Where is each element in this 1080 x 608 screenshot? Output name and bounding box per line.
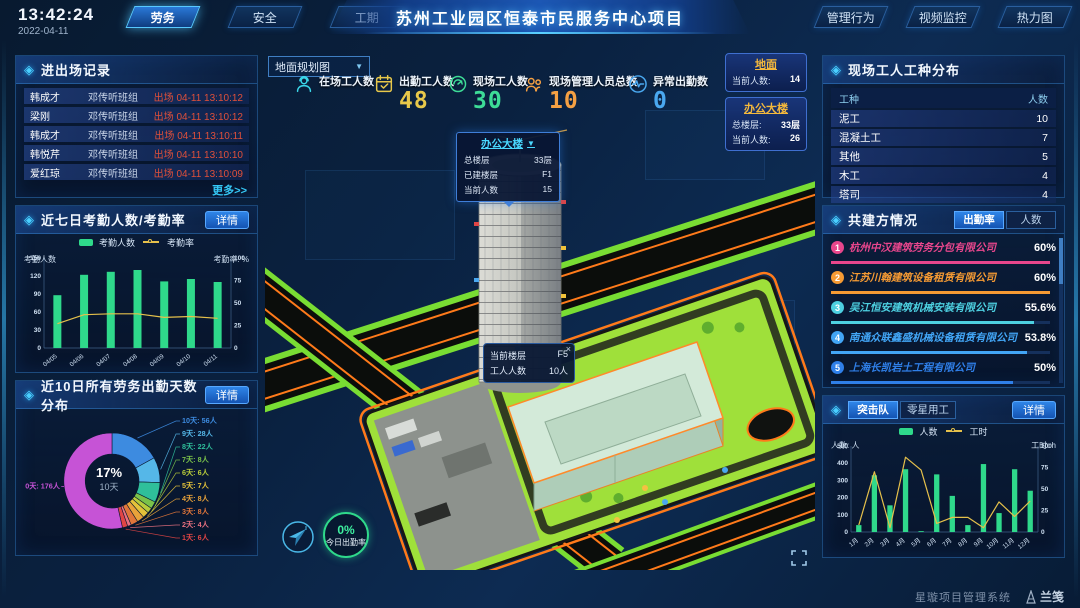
entry-exit-row: 爱红琼邓传听班组出场 04-11 13:10:09 — [24, 164, 249, 180]
card-row-label: 当前人数: — [732, 74, 771, 87]
team-group: 邓传听班组 — [88, 165, 154, 180]
bar-legend-swatch — [79, 239, 93, 246]
worker-type: 塔司 — [839, 187, 1008, 202]
scrollbar[interactable] — [1059, 238, 1063, 383]
close-icon[interactable]: × — [566, 344, 571, 354]
partners-tabs: 出勤率 人数 — [954, 211, 1056, 229]
rank-badge: 4 — [831, 331, 844, 344]
svg-text:3月: 3月 — [879, 536, 892, 548]
svg-text:6月: 6月 — [925, 536, 938, 548]
panel-worker-types: ◈ 现场工人工种分布 工种 人数 泥工10混凝土工7其他5木工4塔司4 — [822, 55, 1065, 198]
exit-event: 出场 04-11 13:10:11 — [154, 127, 243, 142]
company-name: 杭州中汉建筑劳务分包有限公司 — [849, 240, 1029, 255]
company-list-item: 5上海长凯岩土工程有限公司50% — [831, 358, 1056, 385]
panel-title: 近七日考勤人数/考勤率 — [41, 210, 198, 229]
worker-type: 混凝土工 — [839, 130, 1008, 145]
svg-text:04/07: 04/07 — [95, 353, 112, 369]
panel-diamond-icon: ◈ — [24, 62, 34, 78]
stat-value: 30 — [473, 90, 528, 112]
table-row: 其他5 — [831, 148, 1056, 165]
company-list-item: 4南通众联鑫盛机械设备租赁有限公司53.8% — [831, 328, 1056, 357]
people-icon — [523, 72, 545, 101]
company-value: 60% — [1034, 242, 1056, 254]
building-popup-title[interactable]: 办公大楼 ▼ — [464, 136, 552, 151]
stat-text: 现场工人数30 — [473, 72, 528, 112]
panel-title: 共建方情况 — [848, 210, 947, 229]
svg-text:0: 0 — [844, 529, 848, 536]
company-name: 江苏川翰建筑设备租赁有限公司 — [849, 270, 1029, 285]
rank-badge: 2 — [831, 271, 844, 284]
company-list-item: 1杭州中汉建筑劳务分包有限公司60% — [831, 238, 1056, 267]
company-name: 南通众联鑫盛机械设备租赁有限公司 — [849, 330, 1020, 345]
stat-value: 0 — [653, 90, 708, 112]
popup-row-value: 33层 — [534, 154, 552, 166]
svg-text:50: 50 — [1041, 486, 1049, 493]
location-card-row: 当前人数:14 — [732, 74, 800, 87]
tab-label: 管理行为 — [827, 9, 875, 26]
stat-text: 异常出勤数0 — [653, 72, 708, 112]
worker-name: 韩成才 — [30, 89, 88, 104]
worker-name: 梁刚 — [30, 108, 88, 123]
tab-headcount[interactable]: 人数 — [1006, 211, 1056, 229]
edge-glow — [1074, 40, 1078, 598]
progress-track — [831, 351, 1050, 354]
panel-diamond-icon: ◈ — [831, 402, 841, 418]
svg-text:12月: 12月 — [1016, 536, 1031, 551]
popup-row-label: 已建楼层 — [464, 169, 498, 181]
stat-label: 异常出勤数 — [653, 76, 708, 88]
attendance-bar-line-chart: 0306090120150025507510004/0504/0604/0704… — [20, 250, 255, 370]
panel-partners: ◈ 共建方情况 出勤率 人数 1杭州中汉建筑劳务分包有限公司60%2江苏川翰建筑… — [822, 205, 1065, 388]
tab-video-monitor[interactable]: 视频监控 — [906, 6, 981, 28]
card-row-label: 总楼层: — [732, 118, 762, 131]
legend-label: 工时 — [970, 425, 988, 438]
column-header: 工种 — [839, 91, 1008, 106]
tab-assault-team[interactable]: 突击队 — [848, 401, 898, 419]
worker-type: 木工 — [839, 168, 1008, 183]
card-row-value: 14 — [790, 74, 800, 87]
exit-event: 出场 04-11 13:10:09 — [154, 165, 243, 180]
site-stat: 出勤工人数48 — [373, 72, 454, 112]
panel-title: 近10日所有劳务出勤天数分布 — [41, 376, 198, 414]
team-bar-line-chart: 010020030040050002550751001月2月3月4月5月6月7月… — [827, 438, 1062, 554]
exit-event: 出场 04-11 13:10:10 — [154, 146, 243, 161]
table-row: 混凝土工7 — [831, 129, 1056, 146]
popup-row-value: 15 — [543, 184, 552, 196]
svg-text:0天: 176人: 0天: 176人 — [25, 482, 61, 491]
site-stat: 现场管理人员总数10 — [523, 72, 637, 112]
popup-row-label: 当前人数 — [464, 184, 498, 196]
entry-exit-row: 韩悦芹邓传听班组出场 04-11 13:10:10 — [24, 145, 249, 161]
svg-text:25: 25 — [234, 323, 242, 330]
progress-fill — [831, 261, 1050, 264]
donut-center-label: 10天 — [78, 480, 140, 493]
panel-diamond-icon: ◈ — [24, 387, 34, 403]
card-row-value: 26 — [790, 133, 800, 146]
worker-name: 韩成才 — [30, 127, 88, 142]
legend-label: 人数 — [919, 425, 937, 438]
header: 13:42:24 2022-04-11 劳务 安全 工期 苏州工业园区恒泰市民服… — [0, 0, 1080, 44]
svg-text:4月: 4月 — [894, 536, 907, 548]
svg-text:400: 400 — [837, 460, 848, 467]
svg-text:04/11: 04/11 — [203, 353, 220, 368]
footer: 星璇项目管理系统 兰笺 — [915, 588, 1064, 605]
svg-text:75: 75 — [1041, 465, 1049, 472]
header-right-tabs: 管理行为 视频监控 热力图 — [818, 6, 1068, 28]
site-stats-row: 在场工人数出勤工人数48现场工人数30现场管理人员总数10异常出勤数0 — [265, 72, 725, 120]
svg-text:5天: 7人: 5天: 7人 — [182, 481, 210, 490]
worker-type: 泥工 — [839, 111, 1008, 126]
entry-exit-row: 梁刚邓传听班组出场 04-11 13:10:12 — [24, 107, 249, 123]
company-value: 53.8% — [1025, 332, 1056, 344]
team-group: 邓传听班组 — [88, 108, 154, 123]
progress-track — [831, 381, 1050, 384]
tab-heatmap[interactable]: 热力图 — [998, 6, 1073, 28]
worker-name: 爱红琼 — [30, 165, 88, 180]
company-row: 2江苏川翰建筑设备租赁有限公司60% — [831, 270, 1056, 285]
popup-row: 已建楼层F1 — [464, 169, 552, 181]
panel-assault-team: ◈ 突击队 零星用工 详情 人数 工时 人数: 人 工时: h 01002003… — [822, 395, 1065, 558]
tab-label: 劳务 — [151, 9, 175, 26]
legend-label: 考勤率 — [167, 236, 194, 249]
panel-7day-attendance: ◈ 近七日考勤人数/考勤率 详情 考勤人数 考勤率 考勤人数 考勤率: % 03… — [15, 205, 258, 373]
worker-count: 4 — [1008, 189, 1048, 201]
svg-text:04/06: 04/06 — [69, 353, 86, 369]
svg-text:9月: 9月 — [972, 536, 985, 548]
compass-control[interactable] — [279, 518, 317, 556]
company-value: 60% — [1034, 272, 1056, 284]
svg-text:1天: 6人: 1天: 6人 — [182, 533, 210, 542]
fullscreen-button[interactable] — [791, 550, 807, 566]
company-list-item: 2江苏川翰建筑设备租赁有限公司60% — [831, 268, 1056, 297]
brand-logo: 兰笺 — [1025, 588, 1064, 605]
svg-text:50: 50 — [234, 300, 242, 307]
system-name: 星璇项目管理系统 — [915, 589, 1011, 605]
worker-count: 5 — [1008, 151, 1048, 163]
worker-type: 其他 — [839, 149, 1008, 164]
svg-text:04/10: 04/10 — [175, 353, 192, 369]
stat-value: 48 — [399, 90, 454, 112]
svg-text:0: 0 — [1041, 529, 1045, 536]
worker-icon — [293, 72, 315, 101]
map-area: 地面规划图 ▼ 在场工人数出勤工人数48现场工人数30现场管理人员总数10异常出… — [265, 50, 815, 570]
location-cards: 地面当前人数:14办公大楼总楼层:33层当前人数:26 — [725, 53, 807, 156]
today-attendance-value: 0% — [337, 523, 354, 537]
site-stat: 现场工人数30 — [447, 72, 528, 112]
building-name: 办公大楼 — [481, 136, 523, 151]
entry-exit-row: 韩成才邓传听班组出场 04-11 13:10:11 — [24, 126, 249, 142]
tooltip-row: 当前楼层F5 — [490, 349, 568, 362]
progress-fill — [831, 321, 1034, 324]
company-name: 吴江恒安建筑机械安装有限公司 — [849, 300, 1020, 315]
stat-text: 出勤工人数48 — [399, 72, 454, 112]
location-card-row: 当前人数:26 — [732, 133, 800, 146]
panel-entry-exit-records: ◈ 进出场记录 韩成才邓传听班组出场 04-11 13:10:12梁刚邓传听班组… — [15, 55, 258, 198]
svg-text:3天: 8人: 3天: 8人 — [182, 507, 210, 516]
svg-text:1月: 1月 — [847, 536, 860, 548]
today-attendance-label: 今日出勤率 — [326, 537, 366, 548]
card-row-label: 当前人数: — [732, 133, 771, 146]
stat-value: 10 — [549, 90, 637, 112]
popup-row: 当前人数15 — [464, 184, 552, 196]
svg-text:10月: 10月 — [985, 536, 1000, 551]
tab-safety[interactable]: 安全 — [228, 6, 303, 28]
svg-text:5月: 5月 — [910, 536, 923, 548]
dashboard: 13:42:24 2022-04-11 劳务 安全 工期 苏州工业园区恒泰市民服… — [0, 0, 1080, 608]
chevron-down-icon: ▼ — [527, 139, 535, 148]
calendar-check-icon — [373, 72, 395, 101]
tooltip-row: 工人人数10人 — [490, 364, 568, 377]
company-list-item: 3吴江恒安建筑机械安装有限公司55.6% — [831, 298, 1056, 327]
exit-event: 出场 04-11 13:10:12 — [154, 89, 243, 104]
table-row: 泥工10 — [831, 110, 1056, 127]
svg-text:0: 0 — [234, 345, 238, 352]
svg-text:200: 200 — [837, 495, 848, 502]
team-tabs: 突击队 零星用工 — [848, 401, 1005, 419]
more-link[interactable]: 更多>> — [212, 182, 247, 198]
tooltip-row-value: 10人 — [549, 364, 568, 377]
brand-logo-icon — [1025, 590, 1037, 604]
location-card-title[interactable]: 办公大楼 — [732, 100, 800, 116]
svg-text:6天: 6人: 6天: 6人 — [182, 468, 210, 477]
popup-row-value: F1 — [542, 169, 552, 181]
progress-track — [831, 261, 1050, 264]
svg-text:8天: 22人: 8天: 22人 — [182, 442, 214, 451]
popup-row-label: 总楼层 — [464, 154, 490, 166]
table-row: 塔司4 — [831, 186, 1056, 203]
location-card: 地面当前人数:14 — [725, 53, 807, 92]
progress-fill — [831, 381, 1013, 384]
stat-text: 在场工人数 — [319, 72, 374, 90]
svg-text:04/09: 04/09 — [149, 353, 166, 369]
edge-glow — [2, 40, 6, 598]
left-column: ◈ 进出场记录 韩成才邓传听班组出场 04-11 13:10:12梁刚邓传听班组… — [15, 55, 258, 563]
date: 2022-04-11 — [18, 26, 94, 37]
site-stat: 在场工人数 — [293, 72, 374, 101]
tab-label: 热力图 — [1017, 9, 1053, 26]
progress-track — [831, 291, 1050, 294]
team-group: 邓传听班组 — [88, 146, 154, 161]
right-axis-caption: 工时: h — [1031, 440, 1056, 451]
svg-text:7月: 7月 — [941, 536, 954, 548]
rank-badge: 3 — [831, 301, 844, 314]
detail-button[interactable]: 详情 — [205, 386, 249, 404]
rank-badge: 1 — [831, 241, 844, 254]
today-attendance-badge: 0% 今日出勤率 — [323, 512, 369, 558]
bar-legend-swatch — [899, 428, 913, 435]
svg-text:11月: 11月 — [1001, 536, 1016, 550]
location-card-row: 总楼层:33层 — [732, 118, 800, 131]
svg-text:2天: 4人: 2天: 4人 — [182, 520, 210, 529]
company-row: 1杭州中汉建筑劳务分包有限公司60% — [831, 240, 1056, 255]
team-group: 邓传听班组 — [88, 127, 154, 142]
svg-text:120: 120 — [30, 273, 41, 280]
brand-name: 兰笺 — [1040, 588, 1064, 605]
floor-tooltip: × 当前楼层F5工人人数10人 — [483, 343, 575, 383]
tab-labor[interactable]: 劳务 — [126, 6, 201, 28]
worker-count: 10 — [1008, 113, 1048, 125]
tab-label: 安全 — [253, 9, 277, 26]
pulse-icon — [627, 72, 649, 101]
line-legend-swatch — [143, 241, 159, 243]
card-row-value: 33层 — [781, 118, 800, 131]
worker-name: 韩悦芹 — [30, 146, 88, 161]
svg-text:04/08: 04/08 — [122, 353, 139, 369]
time: 13:42:24 — [18, 5, 94, 25]
donut-center-value: 17% — [78, 465, 140, 480]
building-popup: 办公大楼 ▼ 总楼层33层已建楼层F1当前人数15 — [456, 132, 560, 202]
company-row: 3吴江恒安建筑机械安装有限公司55.6% — [831, 300, 1056, 315]
chart-legend: 人数 工时 — [827, 424, 1060, 438]
detail-button[interactable]: 详情 — [1012, 401, 1056, 419]
progress-track — [831, 321, 1050, 324]
svg-text:9天: 28人: 9天: 28人 — [182, 429, 214, 438]
svg-text:60: 60 — [34, 309, 42, 316]
svg-text:75: 75 — [234, 278, 242, 285]
worker-count: 4 — [1008, 170, 1048, 182]
svg-text:90: 90 — [34, 291, 42, 298]
compass-icon — [279, 518, 317, 556]
title-banner: 苏州工业园区恒泰市民服务中心项目 — [330, 0, 750, 34]
tab-management-behavior[interactable]: 管理行为 — [814, 6, 889, 28]
line-legend-swatch — [946, 430, 962, 432]
tab-attendance-rate[interactable]: 出勤率 — [954, 211, 1004, 229]
stat-label: 在场工人数 — [319, 76, 374, 88]
clock: 13:42:24 2022-04-11 — [18, 5, 94, 37]
right-column: ◈ 现场工人工种分布 工种 人数 泥工10混凝土工7其他5木工4塔司4 ◈ 共建… — [822, 55, 1065, 565]
tab-casual-labor[interactable]: 零星用工 — [900, 401, 956, 419]
entry-exit-row: 韩成才邓传听班组出场 04-11 13:10:12 — [24, 88, 249, 104]
worker-count: 7 — [1008, 132, 1048, 144]
company-row: 4南通众联鑫盛机械设备租赁有限公司53.8% — [831, 330, 1056, 345]
panel-diamond-icon: ◈ — [831, 212, 841, 228]
svg-text:300: 300 — [837, 477, 848, 484]
svg-text:04/05: 04/05 — [42, 353, 59, 369]
company-name: 上海长凯岩土工程有限公司 — [849, 360, 1029, 375]
left-axis-caption: 人数: 人 — [831, 440, 859, 451]
table-header: 工种 人数 — [831, 88, 1056, 108]
svg-text:100: 100 — [837, 512, 848, 519]
svg-text:10天: 56人: 10天: 56人 — [182, 416, 218, 425]
exit-event: 出场 04-11 13:10:12 — [154, 108, 243, 123]
svg-text:30: 30 — [34, 327, 42, 334]
company-value: 55.6% — [1025, 302, 1056, 314]
svg-text:4天: 8人: 4天: 8人 — [182, 494, 210, 503]
detail-button[interactable]: 详情 — [205, 211, 249, 229]
tooltip-row-label: 工人人数 — [490, 364, 526, 377]
svg-text:8月: 8月 — [956, 536, 969, 548]
panel-title: 进出场记录 — [41, 60, 249, 79]
team-group: 邓传听班组 — [88, 89, 154, 104]
legend-label: 考勤人数 — [99, 236, 135, 249]
stat-text: 现场管理人员总数10 — [549, 72, 637, 112]
svg-text:7天: 8人: 7天: 8人 — [182, 455, 210, 464]
svg-text:25: 25 — [1041, 508, 1049, 515]
tab-label: 视频监控 — [919, 9, 967, 26]
panel-diamond-icon: ◈ — [831, 62, 841, 78]
rank-badge: 5 — [831, 361, 844, 374]
stat-label: 现场工人数 — [473, 76, 528, 88]
fullscreen-icon — [791, 550, 807, 566]
site-stat: 异常出勤数0 — [627, 72, 708, 112]
table-row: 木工4 — [831, 167, 1056, 184]
company-value: 50% — [1034, 362, 1056, 374]
location-card: 办公大楼总楼层:33层当前人数:26 — [725, 97, 807, 151]
chevron-down-icon: ▼ — [355, 62, 363, 71]
page-title: 苏州工业园区恒泰市民服务中心项目 — [396, 5, 684, 29]
gauge-icon — [447, 72, 469, 101]
company-row: 5上海长凯岩土工程有限公司50% — [831, 360, 1056, 375]
popup-row: 总楼层33层 — [464, 154, 552, 166]
panel-diamond-icon: ◈ — [24, 212, 34, 228]
panel-title: 现场工人工种分布 — [848, 60, 1056, 79]
donut-center: 17% 10天 — [78, 465, 140, 493]
stat-label: 出勤工人数 — [399, 76, 454, 88]
progress-fill — [831, 291, 1050, 294]
column-header: 人数 — [1008, 91, 1048, 106]
tooltip-row-label: 当前楼层 — [490, 349, 526, 362]
progress-fill — [831, 351, 1027, 354]
stat-label: 现场管理人员总数 — [549, 76, 637, 88]
location-card-title[interactable]: 地面 — [732, 56, 800, 72]
panel-attendance-days-distribution: ◈ 近10日所有劳务出勤天数分布 详情 0天: 176人10天: 56人9天: … — [15, 380, 258, 556]
right-axis-caption: 考勤率: % — [213, 254, 249, 265]
chart-legend: 考勤人数 考勤率 — [20, 234, 253, 250]
svg-text:0: 0 — [37, 345, 41, 352]
left-axis-caption: 考勤人数 — [24, 254, 56, 265]
svg-text:2月: 2月 — [863, 536, 876, 548]
